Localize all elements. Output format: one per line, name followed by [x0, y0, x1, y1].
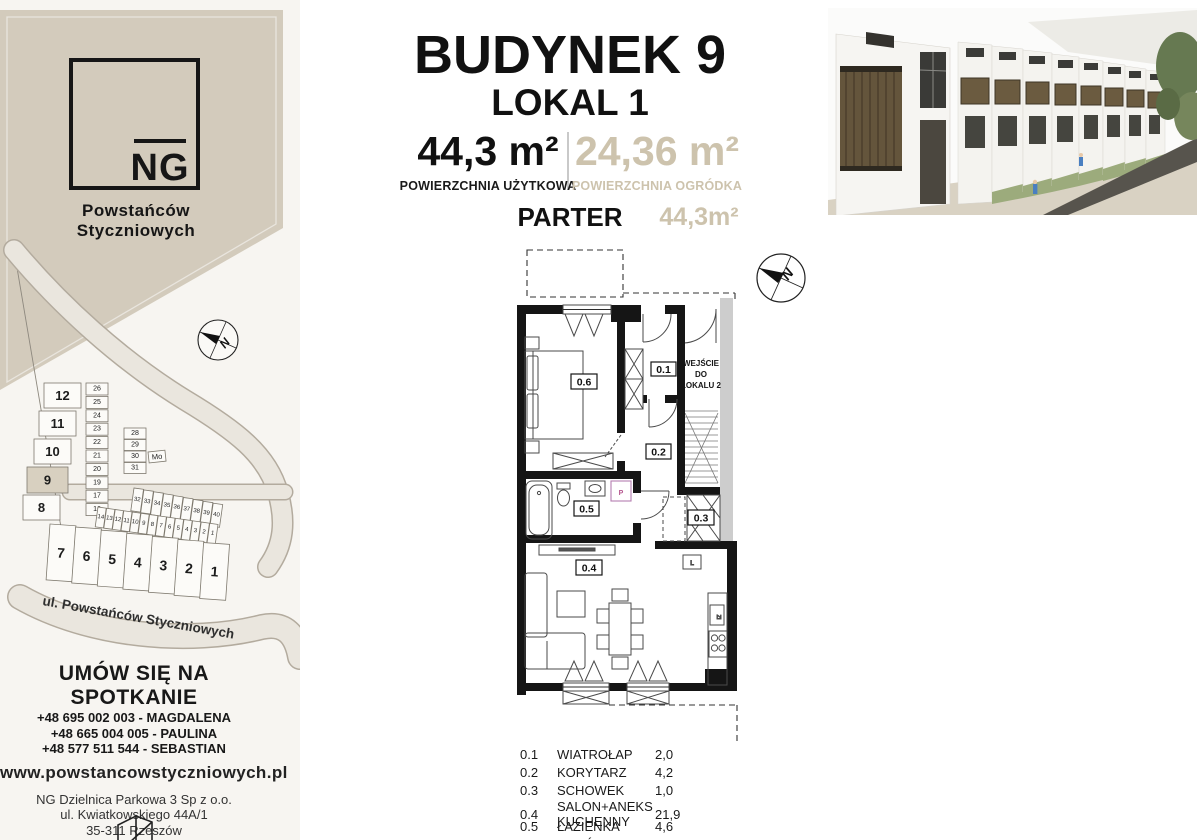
- legend-room-id: 0.6: [520, 837, 557, 840]
- map-plot-4: 4: [123, 533, 153, 591]
- map-plot-Mo: Mo: [148, 450, 166, 463]
- fridge-label: L: [690, 560, 694, 567]
- legend-row: 0.1 WIATROŁAP 2,0: [520, 745, 760, 763]
- map-plot-24: 24: [86, 410, 108, 422]
- building-render-image: [828, 8, 1197, 215]
- unit-title: LOKAL 1: [380, 82, 760, 124]
- legend-room-name: ŁAZIENKA: [557, 819, 655, 834]
- svg-text:31: 31: [131, 465, 139, 472]
- svg-text:20: 20: [93, 466, 101, 473]
- svg-text:8: 8: [38, 500, 45, 515]
- svg-text:2: 2: [185, 560, 194, 577]
- legend-row: 0.3 SCHOWEK 1,0: [520, 781, 760, 799]
- map-plot-10: 10: [34, 439, 71, 464]
- beige-panel: [0, 10, 283, 390]
- map-plot-22: 22: [86, 437, 108, 449]
- svg-text:0.2: 0.2: [651, 447, 666, 459]
- map-plot-6: 6: [72, 527, 102, 585]
- sink-label: Zl: [715, 615, 721, 620]
- legend-room-name: POKÓJ: [557, 837, 655, 840]
- contact-heading: UMÓW SIĘ NA SPOTKANIE: [0, 662, 268, 710]
- company-name: NG Dzielnica Parkowa 3 Sp z o.o.: [0, 792, 268, 808]
- toilet: [557, 483, 570, 506]
- room-tag-0-2: 0.2: [646, 444, 671, 459]
- svg-text:1: 1: [210, 563, 219, 580]
- building-title: BUDYNEK 9: [380, 24, 760, 86]
- map-plot-12: 12: [44, 383, 81, 408]
- map-plot-31: 31: [124, 463, 146, 474]
- legend-room-area: 4,2: [655, 765, 760, 780]
- usable-area-value: 44,3 m²: [398, 128, 578, 175]
- brand-name-line1: Powstańców: [82, 201, 190, 220]
- site-map: 12111098 26252423222120191716 28293031 M…: [14, 250, 300, 657]
- entrance-note-3: LOKALU 2: [681, 381, 722, 390]
- wardrobe: [553, 453, 613, 469]
- map-plot-25: 25: [86, 396, 108, 408]
- svg-text:26: 26: [93, 386, 101, 393]
- contact-phone-1: +48 695 002 003 - MAGDALENA: [0, 710, 268, 726]
- map-plot-2: 2: [174, 540, 204, 598]
- stairs-lokal2: WEJŚCIE DO LOKALU 2: [681, 309, 722, 483]
- svg-text:10: 10: [45, 444, 59, 459]
- map-plot-1: 1: [200, 543, 230, 601]
- svg-text:0.6: 0.6: [577, 377, 592, 389]
- tv-unit: [539, 545, 615, 555]
- brand-name-line2: Styczniowych: [77, 221, 195, 240]
- entrance-note-2: DO: [695, 370, 707, 379]
- entrance-note-1: WEJŚCIE: [683, 359, 720, 368]
- svg-text:17: 17: [93, 493, 101, 500]
- legend-row: 0.4 SALON+ANEKS KUCHENNY 21,9: [520, 799, 760, 817]
- cube-logo-icon: [102, 810, 162, 840]
- contact-website[interactable]: www.powstancowstyczniowych.pl: [0, 763, 268, 783]
- coffee-table: [557, 591, 585, 617]
- svg-text:22: 22: [93, 439, 101, 446]
- dining-table: [597, 589, 643, 669]
- svg-text:7: 7: [57, 545, 66, 562]
- legend-room-name: SCHOWEK: [557, 783, 655, 798]
- svg-text:0.3: 0.3: [694, 513, 709, 525]
- svg-text:23: 23: [93, 426, 101, 433]
- ng-logo-text: NG: [131, 147, 190, 189]
- map-plot-17: 17: [86, 490, 108, 502]
- floor-plan: WEJŚCIE DO LOKALU 2: [505, 243, 745, 743]
- legend-row: 0.6 POKÓJ 10,6: [520, 835, 760, 840]
- room-tag-0-1: 0.1: [651, 362, 676, 376]
- garden-area-label: POWIERZCHNIA OGRÓDKA: [566, 179, 748, 193]
- washbasin: [585, 481, 605, 496]
- sofa: [525, 573, 585, 669]
- legend-row: 0.2 KORYTARZ 4,2: [520, 763, 760, 781]
- page: NG Powstańców Styczniowych 12111098: [0, 0, 1197, 840]
- map-plot-5: 5: [97, 530, 127, 588]
- map-plot-21: 21: [86, 450, 108, 462]
- map-plot-28: 28: [124, 428, 146, 439]
- svg-text:19: 19: [93, 479, 101, 486]
- bed: [525, 337, 583, 453]
- svg-text:0.4: 0.4: [582, 563, 597, 575]
- floorplan-compass-n: N: [778, 264, 797, 283]
- legend-room-id: 0.2: [520, 765, 557, 780]
- svg-text:6: 6: [82, 548, 91, 565]
- legend-room-id: 0.5: [520, 819, 557, 834]
- floor-area-value: 44,3m²: [653, 203, 745, 232]
- svg-text:24: 24: [93, 412, 101, 419]
- legend-room-area: 2,0: [655, 747, 760, 762]
- map-plot-7: 7: [46, 524, 76, 582]
- svg-text:21: 21: [93, 453, 101, 460]
- floor-label: PARTER: [480, 202, 660, 233]
- map-plot-8: 8: [23, 495, 60, 520]
- map-plot-29: 29: [124, 440, 146, 451]
- site-map-garages-right: 28293031: [124, 428, 146, 474]
- legend-room-id: 0.1: [520, 747, 557, 762]
- map-plot-23: 23: [86, 423, 108, 435]
- svg-text:9: 9: [44, 473, 51, 488]
- room-tag-0-5: 0.5: [574, 501, 599, 516]
- legend-room-id: 0.3: [520, 783, 557, 798]
- svg-text:29: 29: [131, 442, 139, 449]
- legend-room-area: 10,6: [655, 837, 760, 840]
- map-plot-26: 26: [86, 383, 108, 395]
- bathtub: [526, 481, 552, 539]
- svg-text:25: 25: [93, 399, 101, 406]
- map-plot-30: 30: [124, 451, 146, 462]
- near-building: [836, 32, 950, 215]
- floorplan-compass-icon: N: [750, 247, 812, 309]
- washing-machine: P: [611, 481, 631, 501]
- room-tag-0-4: 0.4: [576, 560, 602, 575]
- garden-area-value: 24,36 m²: [566, 128, 748, 175]
- legend-row: 0.5 ŁAZIENKA 4,6: [520, 817, 760, 835]
- neighbour-strip: [720, 298, 733, 543]
- sidebar: NG Powstańców Styczniowych 12111098: [0, 0, 300, 840]
- room-tag-0-6: 0.6: [571, 374, 597, 389]
- site-map-mo-box: Mo: [148, 450, 166, 463]
- svg-text:Mo: Mo: [151, 452, 162, 462]
- legend-room-area: 1,0: [655, 783, 760, 798]
- installation-shaft: [625, 349, 643, 409]
- site-map-garages: 26252423222120191716: [86, 383, 108, 516]
- legend-room-name: KORYTARZ: [557, 765, 655, 780]
- map-plot-11: 11: [39, 411, 76, 436]
- svg-text:11: 11: [51, 416, 65, 431]
- svg-text:3: 3: [159, 557, 168, 574]
- washer-label: P: [619, 490, 624, 497]
- contact-phone-2: +48 665 004 005 - PAULINA: [0, 726, 268, 742]
- svg-text:28: 28: [131, 430, 139, 437]
- usable-area-label: POWIERZCHNIA UŻYTKOWA: [398, 179, 578, 193]
- svg-text:30: 30: [131, 453, 139, 460]
- room-tag-0-3: 0.3: [688, 510, 714, 525]
- kitchen: L Zl: [683, 555, 727, 685]
- map-plot-9: 9: [27, 467, 68, 493]
- legend-room-area: 4,6: [655, 819, 760, 834]
- svg-text:0.5: 0.5: [579, 504, 594, 516]
- contact-phone-3: +48 577 511 544 - SEBASTIAN: [0, 741, 268, 757]
- map-plot-3: 3: [148, 536, 178, 594]
- map-plot-20: 20: [86, 463, 108, 475]
- map-plot-19: 19: [86, 477, 108, 489]
- svg-text:5: 5: [108, 551, 117, 568]
- legend-room-name: WIATROŁAP: [557, 747, 655, 762]
- room-legend: 0.1 WIATROŁAP 2,0 0.2 KORYTARZ 4,2 0.3 S…: [520, 745, 760, 840]
- svg-text:4: 4: [133, 554, 142, 571]
- svg-text:12: 12: [55, 388, 69, 403]
- svg-text:0.1: 0.1: [656, 364, 671, 376]
- sitemap-compass-icon: N: [198, 320, 238, 360]
